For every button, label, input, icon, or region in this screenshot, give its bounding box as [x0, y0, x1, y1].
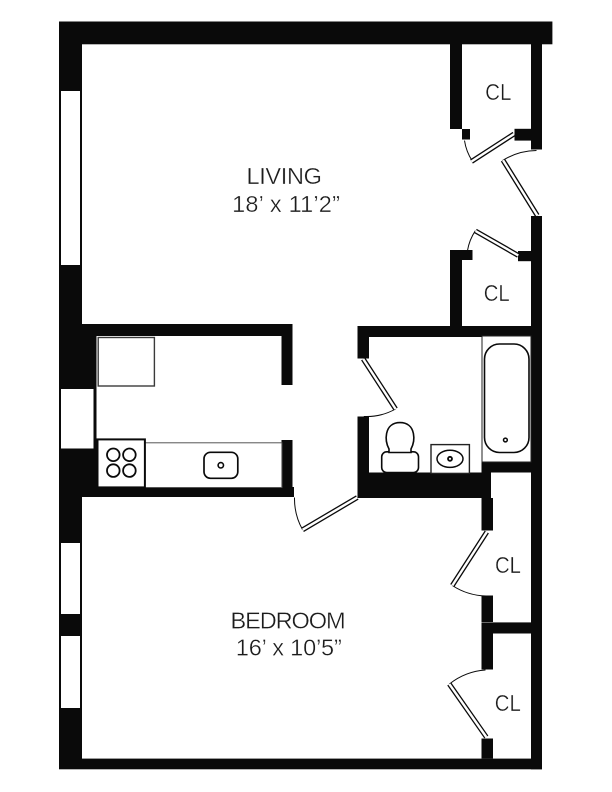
svg-text:CL: CL [484, 280, 510, 306]
svg-text:LIVING: LIVING [246, 163, 322, 189]
svg-text:CL: CL [485, 79, 511, 105]
svg-text:CL: CL [495, 552, 521, 578]
svg-text:18’ x 11’2”: 18’ x 11’2” [232, 191, 340, 217]
svg-text:16’ x 10’5”: 16’ x 10’5” [236, 635, 342, 661]
svg-text:BEDROOM: BEDROOM [230, 608, 345, 634]
svg-text:CL: CL [495, 690, 521, 716]
